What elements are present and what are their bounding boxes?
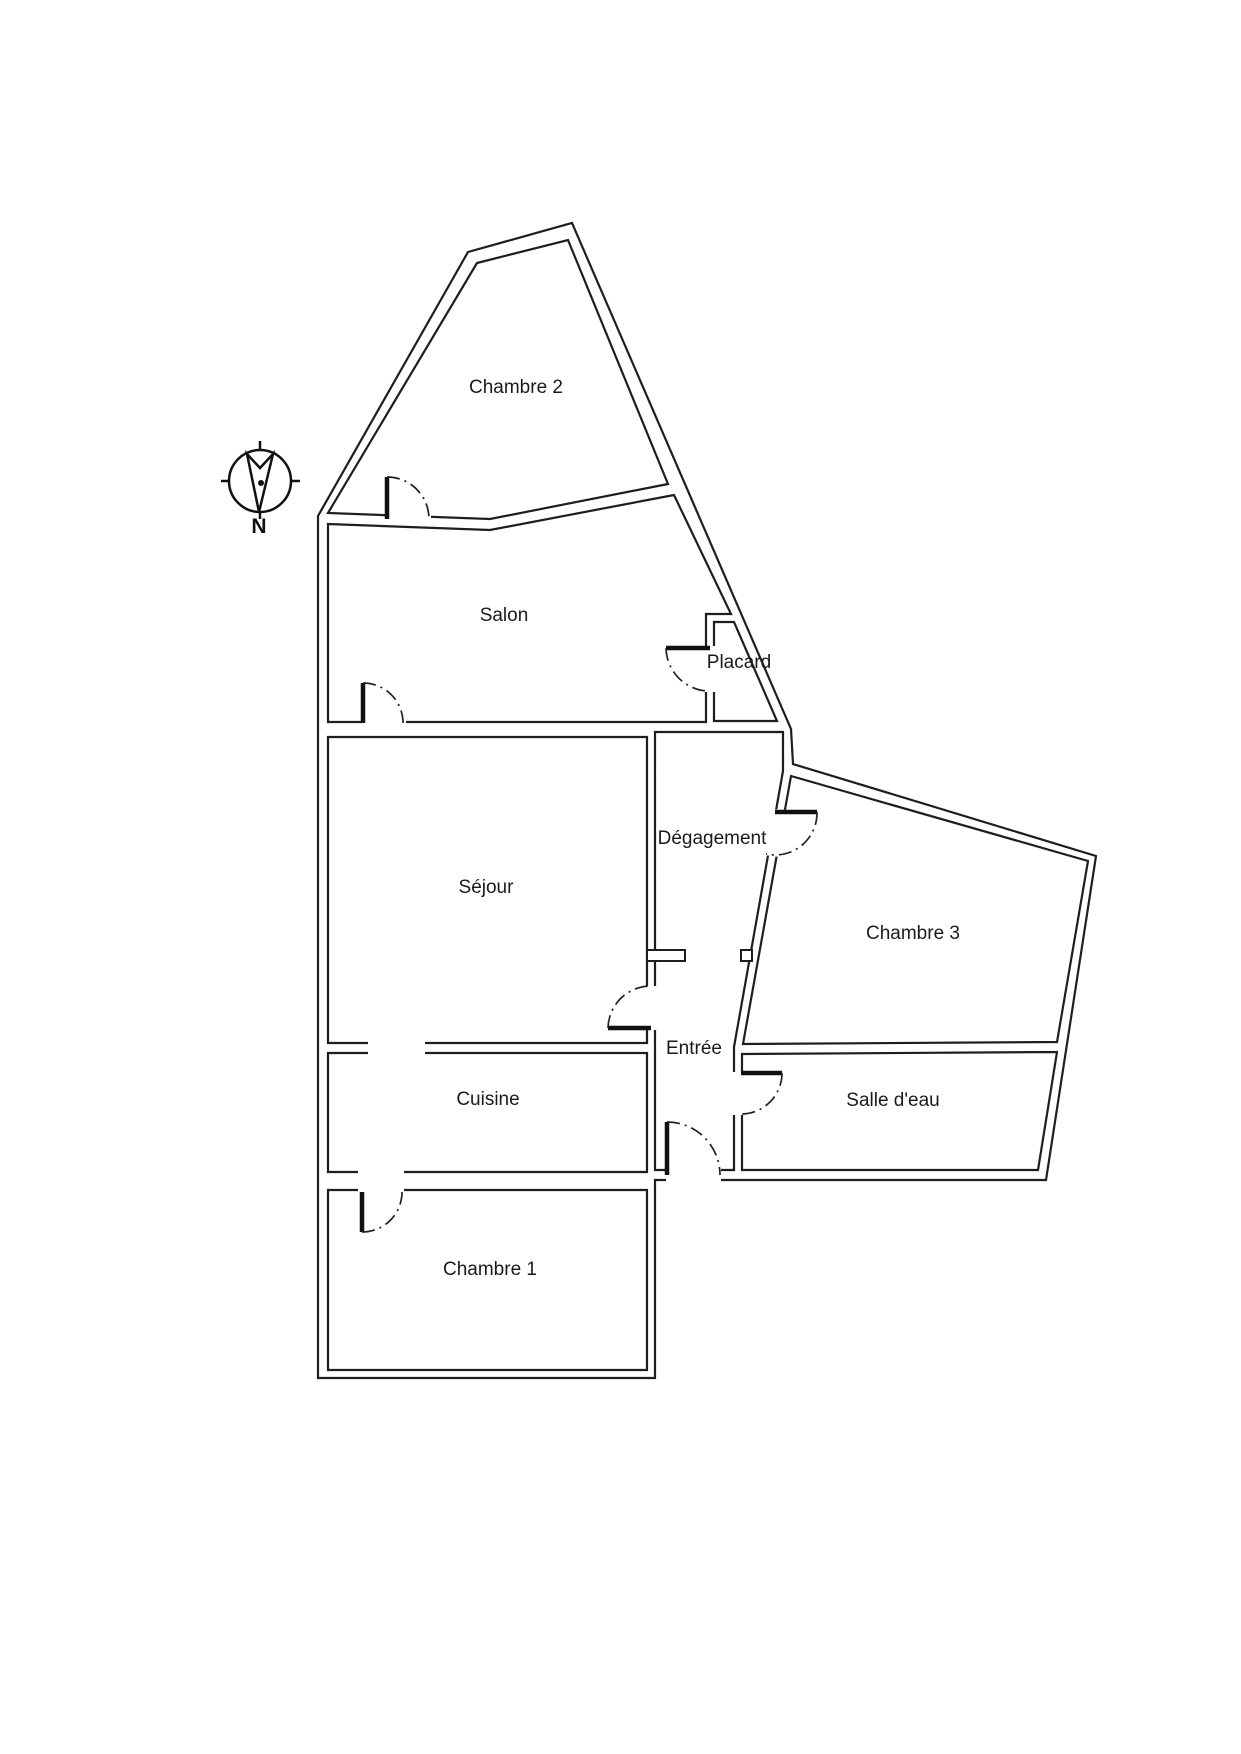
room-label-chambre-3: Chambre 3 [866,923,960,944]
door-opening-salle-deau [732,1072,744,1115]
door-opening-sejour [645,986,657,1030]
floorplan-svg: N Chambre 2 Salon Placard Dégagement Séj… [0,0,1241,1754]
room-label-cuisine: Cuisine [456,1089,519,1110]
room-cuisine [328,1053,647,1172]
compass-north-label: N [251,515,266,538]
room-label-degagement: Dégagement [658,828,768,849]
room-label-chambre-1: Chambre 1 [443,1259,537,1280]
wall-stub-degagement-right [741,950,752,961]
room-label-sejour: Séjour [459,877,515,898]
room-label-chambre-2: Chambre 2 [469,377,563,398]
door-opening-salon [362,719,406,734]
room-label-salon: Salon [480,605,529,626]
room-salon [328,495,731,722]
door-opening-chambre-1 [358,1170,404,1192]
door-opening-entree-front [666,1167,721,1182]
room-label-entree: Entrée [666,1038,722,1059]
floorplan-page: N Chambre 2 Salon Placard Dégagement Séj… [0,0,1241,1754]
passage-opening-sejour-cuisine [368,1041,425,1055]
room-salle-deau [742,1052,1057,1170]
compass: N [221,441,300,538]
room-chambre-3 [743,776,1088,1044]
wall-stub-degagement-left [647,950,685,961]
door-opening-chambre-2 [386,506,431,522]
compass-center-dot [258,480,264,486]
room-label-salle-deau: Salle d'eau [846,1090,939,1111]
room-chambre-1 [328,1190,647,1370]
room-label-placard: Placard [707,652,771,673]
